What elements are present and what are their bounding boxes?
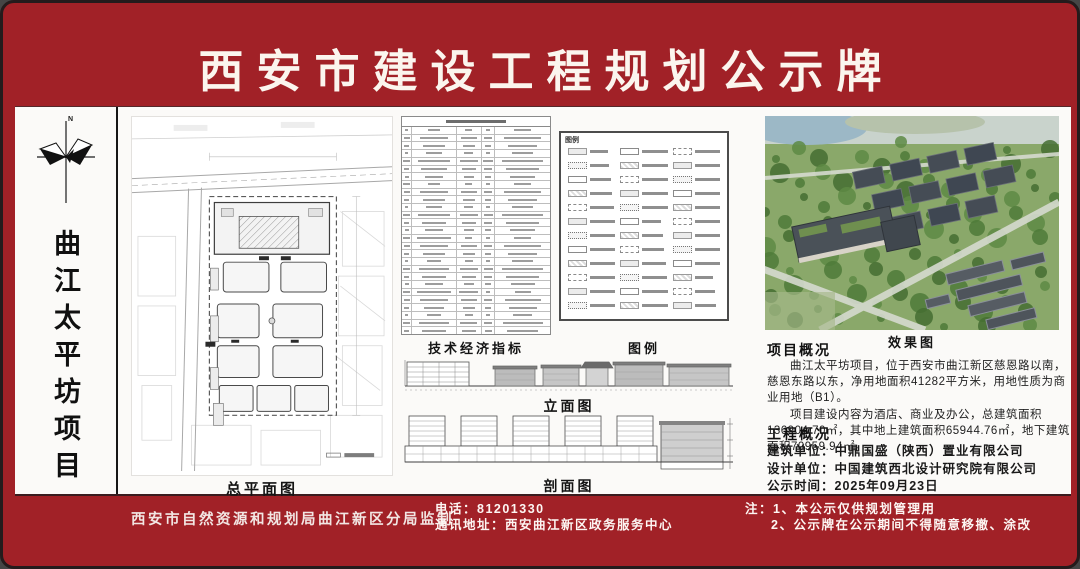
legend-item — [568, 300, 615, 312]
legend-item — [568, 145, 615, 157]
footer-contact: 电话：81201330 通讯地址：西安曲江新区政务服务中心 — [435, 501, 673, 533]
footer-note-2: 2、公示牌在公示期间不得随意移撤、涂改 — [745, 517, 1031, 533]
legend-inner-title: 图例 — [565, 135, 579, 145]
indicators-table-body — [402, 127, 550, 334]
legend-label: 图例 — [559, 338, 729, 357]
legend-grid — [568, 145, 720, 312]
legend-item — [568, 258, 615, 270]
board-title: 西安市建设工程规划公示牌 — [3, 35, 1077, 100]
legend-item — [568, 229, 615, 241]
engineering-overview-text: 建筑单位：中鼎国盛（陕西）置业有限公司 设计单位：中国建筑西北设计研究院有限公司… — [767, 443, 1071, 496]
indicators-table — [401, 116, 551, 335]
legend-item — [620, 300, 667, 312]
legend-item — [568, 201, 615, 213]
legend-item — [620, 173, 667, 185]
site-plan-drawing — [131, 116, 393, 476]
legend-item — [568, 272, 615, 284]
svg-text:N: N — [68, 116, 73, 123]
footer-notes: 注：1、本公示仅供规划管理用 2、公示牌在公示期间不得随意移撤、涂改 — [745, 501, 1031, 533]
legend-item — [673, 187, 720, 199]
site-plan-label: 总平面图 — [131, 478, 393, 499]
legend-item — [568, 286, 615, 298]
indicators-label: 技术经济指标 — [401, 338, 551, 357]
notice-board-photo: 西安市建设工程规划公示牌 N 曲江太平坊项目 — [0, 0, 1080, 569]
legend-item — [620, 215, 667, 227]
elevation-label: 立面图 — [403, 396, 735, 416]
section-drawing — [403, 410, 735, 473]
rendering-image — [765, 116, 1059, 330]
footer-address: 通讯地址：西安曲江新区政务服务中心 — [435, 517, 673, 533]
legend-item — [673, 215, 720, 227]
legend-item — [620, 201, 667, 213]
legend-item — [620, 244, 667, 256]
legend-item — [673, 300, 720, 312]
project-overview-para1: 曲江太平坊项目，位于西安市曲江新区慈恩路以南，慈恩东路以东，净用地面积41282… — [767, 358, 1071, 406]
legend-item — [568, 159, 615, 171]
left-sidebar: N 曲江太平坊项目 — [15, 107, 118, 494]
legend-item — [620, 187, 667, 199]
legend-item — [673, 286, 720, 298]
indicators-table-title — [402, 117, 550, 127]
builder-line: 建筑单位：中鼎国盛（陕西）置业有限公司 — [767, 443, 1071, 461]
legend-item — [620, 145, 667, 157]
content-panel: N 曲江太平坊项目 — [15, 106, 1071, 496]
footer-phone: 电话：81201330 — [435, 501, 673, 517]
legend-item — [673, 159, 720, 171]
legend-item — [568, 215, 615, 227]
designer-line: 设计单位：中国建筑西北设计研究院有限公司 — [767, 461, 1071, 479]
section-label: 剖面图 — [403, 476, 735, 496]
footer-supervisor: 西安市自然资源和规划局曲江新区分局监制 — [131, 508, 454, 529]
legend-item — [568, 244, 615, 256]
legend-item — [620, 286, 667, 298]
legend-item — [620, 159, 667, 171]
legend-box: 图例 — [559, 131, 729, 321]
legend-item — [673, 201, 720, 213]
legend-item — [568, 187, 615, 199]
footer-note-1: 注：1、本公示仅供规划管理用 — [745, 501, 1031, 517]
project-overview-heading: 项目概况 — [767, 340, 831, 360]
legend-item — [673, 272, 720, 284]
legend-item — [673, 258, 720, 270]
elevation-drawing — [403, 354, 735, 394]
legend-item — [620, 272, 667, 284]
planning-notice-board: 西安市建设工程规划公示牌 N 曲江太平坊项目 — [0, 0, 1080, 569]
legend-item — [620, 229, 667, 241]
legend-item — [673, 229, 720, 241]
publish-date-line: 公示时间：2025年09月23日 — [767, 478, 1071, 496]
legend-item — [568, 173, 615, 185]
engineering-overview-heading: 工程概况 — [767, 424, 831, 444]
legend-item — [673, 145, 720, 157]
compass-north-icon: N — [34, 113, 98, 209]
project-name-vertical: 曲江太平坊项目 — [46, 229, 85, 488]
legend-item — [673, 244, 720, 256]
legend-item — [673, 173, 720, 185]
legend-item — [620, 258, 667, 270]
